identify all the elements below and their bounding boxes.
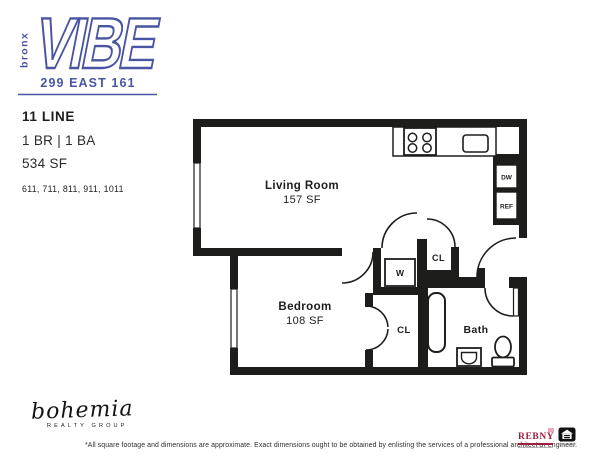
rebny-mark-icon	[548, 428, 554, 432]
bath-label: Bath	[464, 324, 489, 336]
wall-top	[193, 119, 527, 127]
walls	[193, 119, 527, 375]
bath-door-arc	[485, 288, 513, 316]
flyer-page: bronx VIBE 299 EAST 161 11 LINE 1 BR | 1…	[0, 0, 600, 460]
kitchen-sink	[463, 135, 488, 152]
wall-right-a	[519, 119, 527, 238]
wall-hallway	[427, 277, 485, 288]
bedroom-sf: 108 SF	[286, 315, 324, 327]
hall-closet-label: CL	[432, 253, 445, 263]
realty-logo: bohemia REALTY GROUP	[31, 398, 134, 429]
disclaimer-text: *All square footage and dimensions are a…	[85, 442, 577, 449]
wall-bottom	[230, 367, 527, 375]
bedroom-window	[231, 289, 237, 348]
bedroom-closet-door-arc-top	[366, 306, 388, 327]
bathtub	[428, 293, 445, 352]
bedroom-label: Bedroom	[278, 301, 331, 313]
wall-bath-door-jamb-right	[509, 277, 519, 288]
refrigerator-label: REF	[500, 204, 513, 211]
bath-door-leaf	[514, 288, 519, 316]
dishwasher-label: DW	[501, 175, 513, 182]
wall-living-bottom	[193, 248, 342, 256]
realty-script-wordmark: bohemia	[31, 396, 134, 425]
wall-center-stub	[417, 239, 427, 295]
realty-subtitle: REALTY GROUP	[47, 423, 134, 429]
wall-bath-left	[418, 295, 428, 375]
bedroom-closet-label: CL	[397, 325, 411, 336]
rebny-wordmark: REBNY	[518, 432, 555, 442]
rebny-underline	[518, 443, 553, 445]
living-room-window	[194, 163, 200, 228]
wall-right-b	[519, 277, 527, 375]
equal-housing-opportunity-icon	[558, 427, 577, 449]
wall-bedroom-closet-stub-top	[365, 293, 373, 307]
hall-closet-door-arc	[427, 219, 455, 247]
kitchen	[393, 127, 517, 219]
washer-label: W	[396, 268, 405, 278]
toilet-tank	[492, 358, 514, 367]
bedroom-door-arc	[342, 252, 373, 283]
floorplan: Living Room 157 SF Bedroom 108 SF Bath C…	[0, 0, 600, 460]
living-room-sf: 157 SF	[283, 194, 321, 206]
wall-left-upper-a	[193, 119, 201, 163]
toilet-bowl	[495, 337, 511, 358]
wall-bedroom-left-a	[230, 248, 238, 289]
bath-sink-bowl	[462, 353, 477, 364]
bedroom-closet-door-arc-bottom	[366, 329, 388, 350]
washer-closet-door-arc	[382, 213, 417, 248]
rebny-microtext	[518, 447, 553, 448]
wall-bedroom-closet-stub-bottom	[365, 350, 373, 367]
living-room-label: Living Room	[265, 180, 339, 192]
rebny-logo: REBNY	[518, 428, 555, 448]
